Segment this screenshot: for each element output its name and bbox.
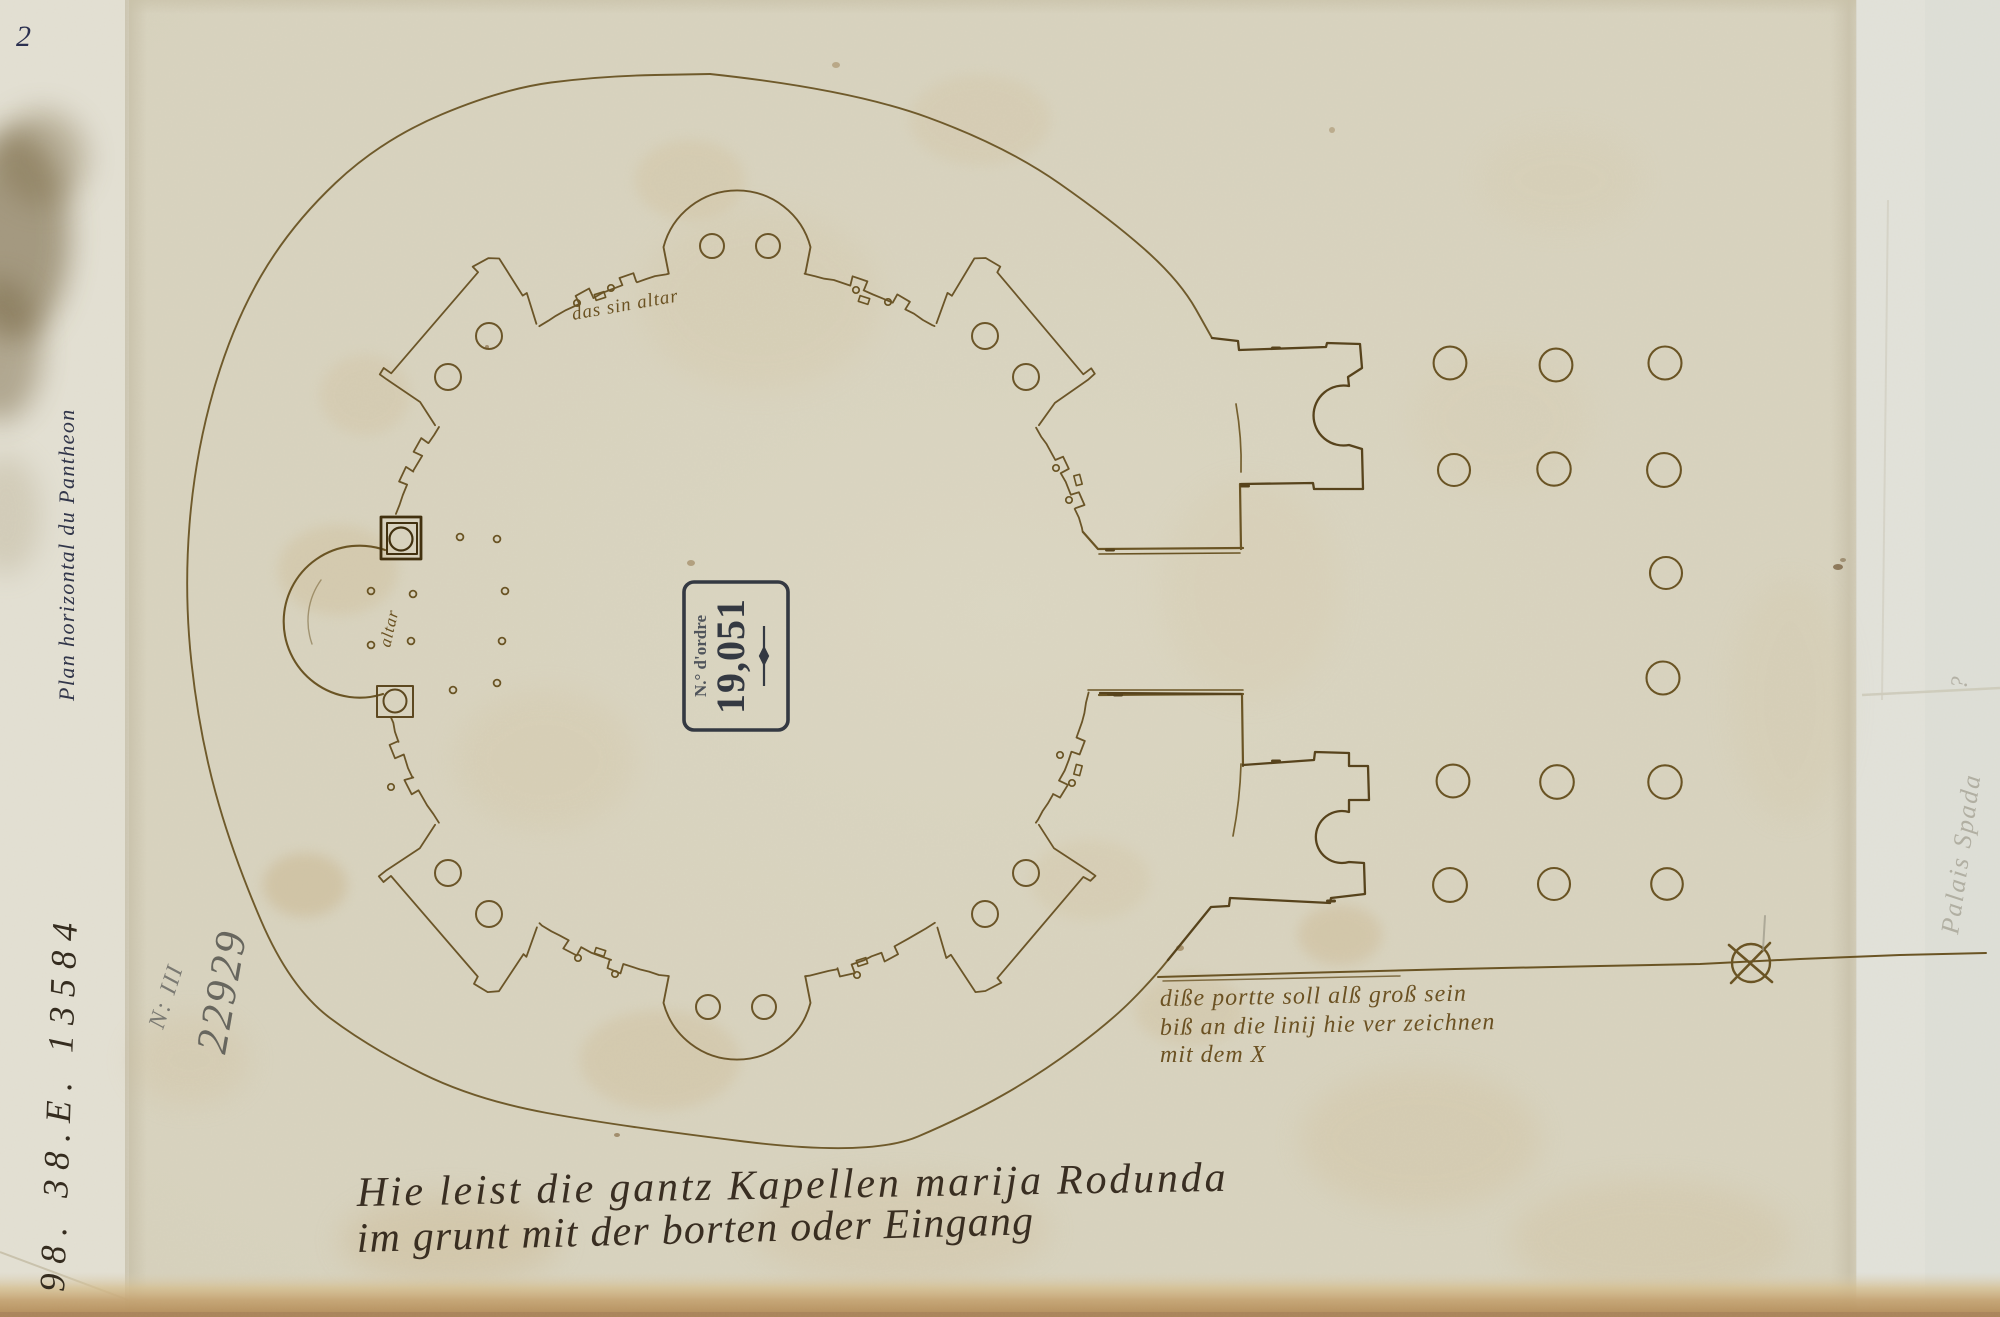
svg-text:Plan horizontal du Pantheon: Plan horizontal du Pantheon xyxy=(54,408,79,702)
svg-text:mit dem X: mit dem X xyxy=(1160,1042,1267,1068)
svg-text:19,051: 19,051 xyxy=(708,598,753,714)
svg-text:diße portte soll alß groß sein: diße portte soll alß groß sein xyxy=(1160,981,1468,1012)
svg-text:2: 2 xyxy=(16,20,31,53)
